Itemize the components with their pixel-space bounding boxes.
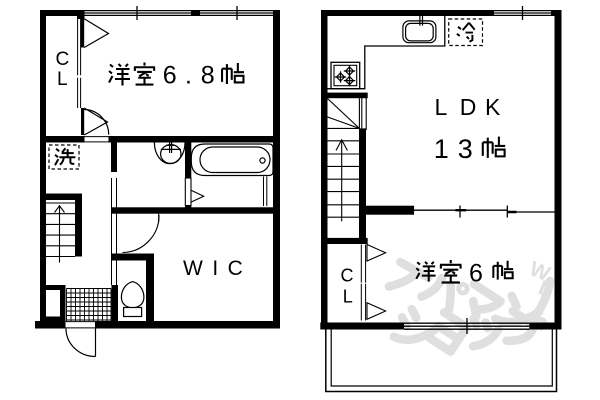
svg-text:K: K — [485, 94, 501, 120]
svg-text:C: C — [56, 49, 70, 70]
svg-text:.: . — [185, 62, 192, 90]
svg-text:L: L — [343, 287, 353, 307]
svg-text:1: 1 — [434, 134, 449, 164]
svg-text:8: 8 — [201, 62, 215, 90]
svg-text:3: 3 — [458, 134, 473, 164]
svg-text:D: D — [460, 94, 477, 120]
svg-text:L: L — [435, 94, 448, 120]
svg-text:WIC: WIC — [183, 257, 252, 280]
svg-text:L: L — [57, 69, 68, 90]
svg-text:6: 6 — [163, 62, 177, 90]
svg-text:6: 6 — [469, 260, 483, 288]
svg-text:C: C — [341, 265, 354, 285]
